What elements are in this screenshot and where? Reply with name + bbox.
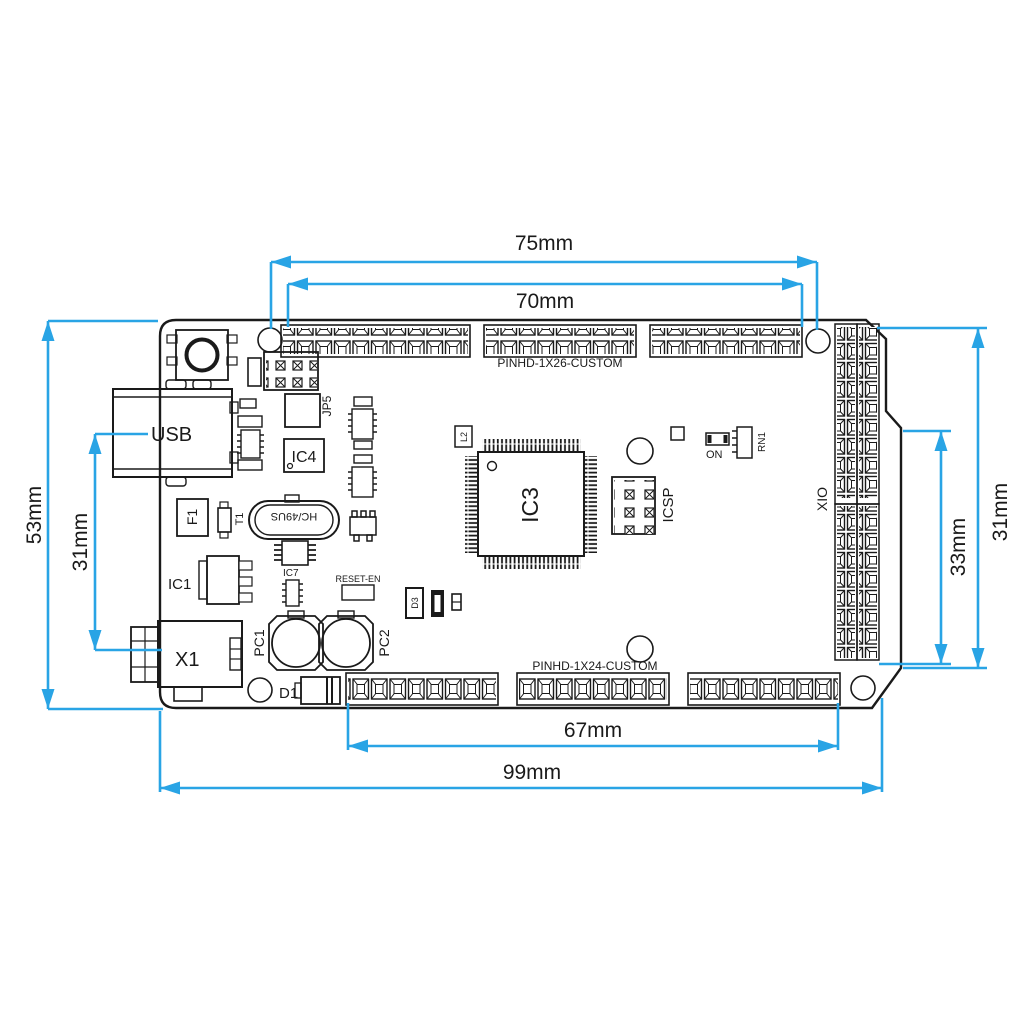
dim-bottom-total: 99mm	[503, 761, 561, 784]
reset-en-jumper: RESET-EN	[335, 574, 380, 600]
smd-square	[285, 394, 320, 427]
passives-column-a	[237, 399, 264, 470]
mcu-label: IC3	[517, 487, 543, 523]
xio-label: XIO	[814, 487, 830, 511]
dim-right-header: 33mm	[947, 518, 970, 576]
icsp-label: ICSP	[660, 487, 677, 522]
dim-bottom-header: 67mm	[564, 719, 622, 742]
transistor-t1: T1	[218, 502, 246, 538]
sot23-part	[350, 511, 376, 541]
power-led: ON	[706, 433, 729, 461]
fuse-f1: F1	[177, 499, 208, 536]
dim-left-total: 53mm	[23, 486, 46, 544]
jp5-header: JP5	[264, 352, 334, 416]
on-label: ON	[706, 449, 723, 461]
jp5-label: JP5	[320, 395, 334, 416]
mounting-hole	[851, 676, 875, 700]
power-jack: X1	[131, 621, 242, 701]
diode-d1: D1	[279, 677, 340, 704]
top-pin-header: PINHD-1X26-CUSTOM	[281, 325, 802, 370]
crystal: HC/49US	[249, 495, 339, 539]
usb-label: USB	[151, 424, 192, 446]
fuse-label: F1	[184, 509, 200, 526]
pc1-label: PC1	[251, 629, 267, 656]
capacitor-pc1: PC1	[251, 611, 323, 670]
bottom-pin-header: PINHD-1X24-CUSTOM	[346, 659, 840, 705]
reset-en-label: RESET-EN	[335, 574, 380, 584]
l2-label: L2	[459, 432, 469, 442]
mounting-hole	[806, 329, 830, 353]
dim-top-inner: 70mm	[516, 290, 574, 313]
dim-left-connectors: 31mm	[69, 513, 92, 571]
mounting-hole	[258, 328, 282, 352]
dim-right-total: 31mm	[989, 483, 1012, 541]
dim-top-outer: 75mm	[515, 232, 573, 255]
usb-controller-ic4: IC4	[284, 439, 324, 472]
power-jack-label: X1	[175, 649, 199, 671]
transistor-label: T1	[234, 513, 246, 526]
regulator-label: IC1	[168, 576, 191, 593]
bottom-header-label: PINHD-1X24-CUSTOM	[532, 659, 657, 673]
regulator-ic1: IC1	[168, 556, 252, 604]
d3-label: D3	[410, 597, 420, 609]
resistor-network-rn1: RN1	[732, 427, 768, 458]
ic7-label: IC7	[283, 568, 299, 579]
ic7-group: IC7	[274, 541, 316, 606]
icsp-header: ICSP	[612, 477, 677, 534]
ic4-label: IC4	[292, 449, 317, 466]
inductor-l2: L2	[455, 426, 472, 447]
mounting-hole	[627, 438, 653, 464]
top-header-label: PINHD-1X26-CUSTOM	[497, 356, 622, 370]
capacitor-pc2: PC2	[319, 611, 392, 670]
pc2-label: PC2	[376, 629, 392, 656]
drawing-canvas: PINHD-1X26-CUSTOM PINHD-1X24-CUSTOM XIO	[0, 0, 1024, 1024]
pcb-dimension-drawing: PINHD-1X26-CUSTOM PINHD-1X24-CUSTOM XIO	[0, 0, 1024, 1024]
crystal-label: HC/49US	[271, 510, 317, 522]
mcu-ic3: IC3	[465, 439, 597, 569]
rn1-label: RN1	[757, 432, 768, 452]
passives-column-b	[348, 397, 377, 497]
smd-pad-square	[671, 427, 684, 440]
xio-header: XIO	[814, 324, 879, 660]
d3-group: D3	[406, 588, 461, 618]
mounting-hole	[248, 678, 272, 702]
